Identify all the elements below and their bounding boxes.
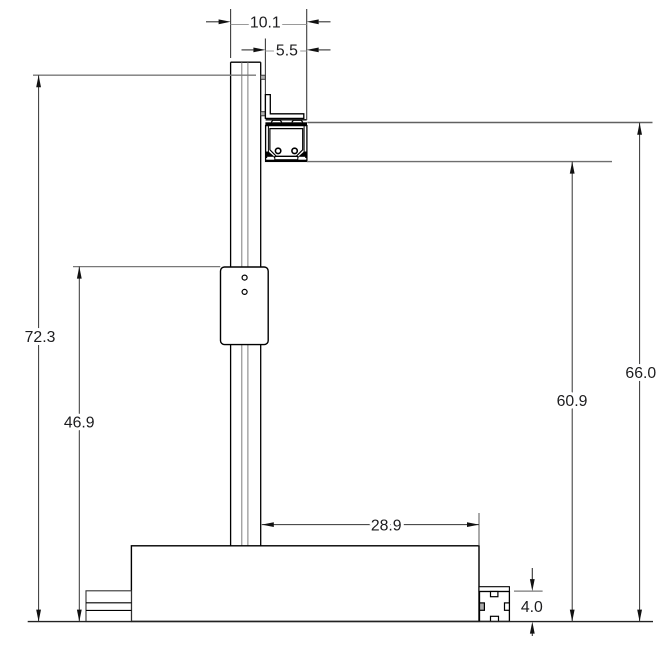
svg-text:5.5: 5.5	[276, 43, 298, 60]
svg-text:66.0: 66.0	[625, 365, 656, 382]
svg-text:72.3: 72.3	[25, 329, 56, 346]
svg-text:28.9: 28.9	[371, 517, 402, 534]
svg-text:10.1: 10.1	[250, 15, 281, 32]
svg-text:4.0: 4.0	[521, 599, 543, 616]
svg-text:46.9: 46.9	[64, 415, 95, 432]
svg-text:60.9: 60.9	[557, 393, 588, 410]
